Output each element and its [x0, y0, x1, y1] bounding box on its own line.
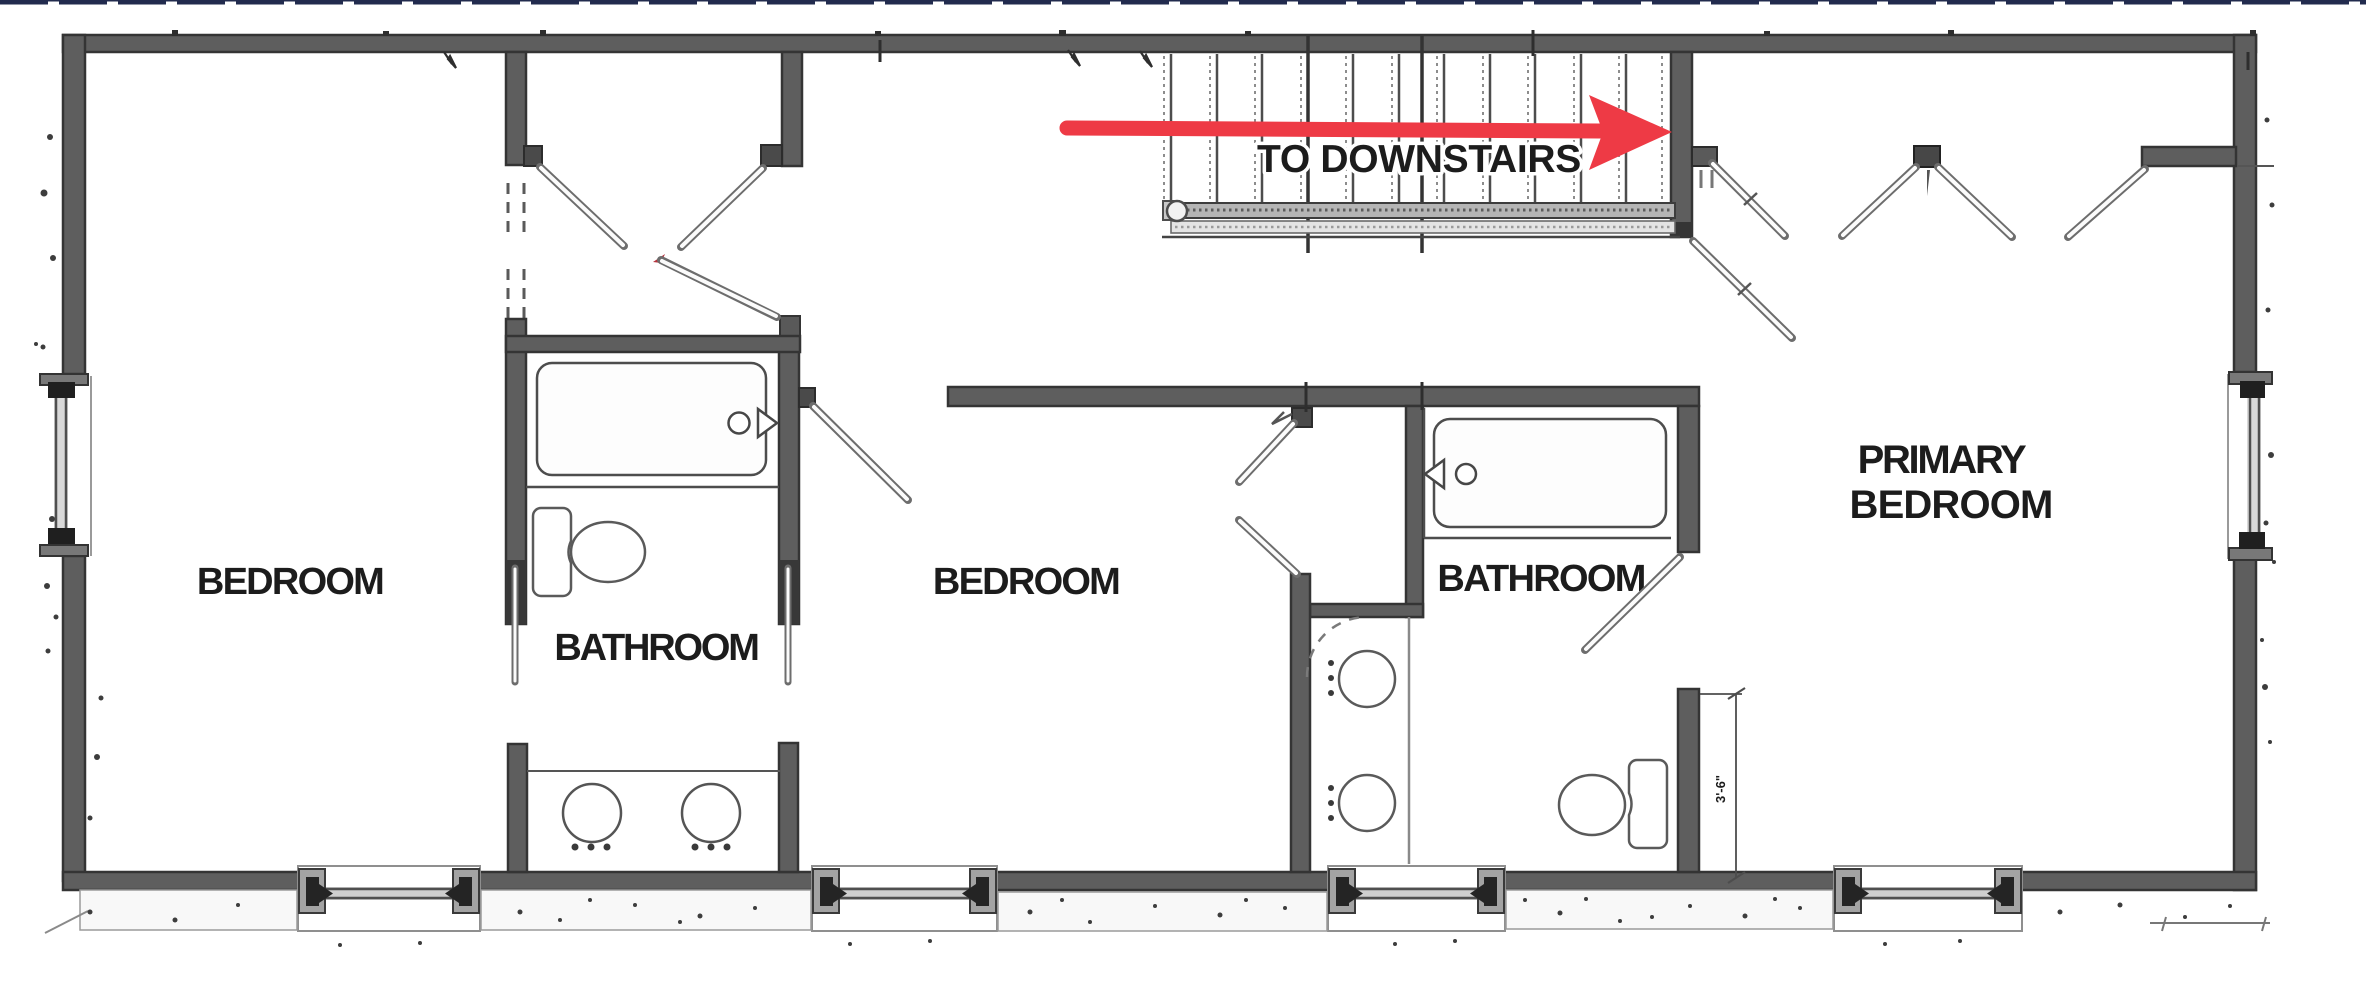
svg-text:PRIMARY: PRIMARY: [1858, 438, 2027, 482]
svg-text:TO DOWNSTAIRS: TO DOWNSTAIRS: [1257, 138, 1581, 181]
svg-text:BATHROOM: BATHROOM: [554, 627, 758, 669]
svg-text:BEDROOM: BEDROOM: [933, 561, 1119, 603]
svg-text:BATHROOM: BATHROOM: [1437, 558, 1644, 600]
svg-text:3'-6": 3'-6": [1713, 775, 1728, 803]
svg-text:BEDROOM: BEDROOM: [1850, 483, 2053, 527]
svg-text:BEDROOM: BEDROOM: [197, 561, 383, 603]
